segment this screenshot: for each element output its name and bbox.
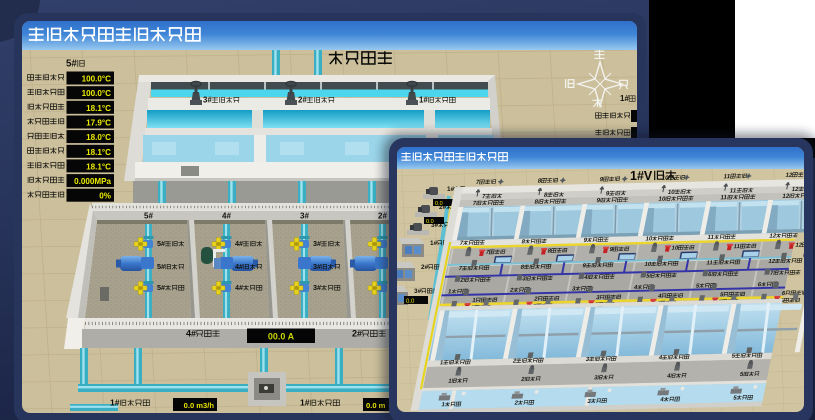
svg-text:18.1°C: 18.1°C [86,104,111,113]
svg-text:1#: 1# [419,95,428,104]
svg-text:5#: 5# [157,239,165,248]
svg-text:1#: 1# [447,186,455,193]
svg-text:0.0 m3/h: 0.0 m3/h [184,401,215,410]
svg-text:4#: 4# [235,262,243,271]
svg-text:4#: 4# [222,212,231,221]
svg-text:00.0 A: 00.0 A [268,332,295,342]
svg-text:17.9°C: 17.9°C [86,118,111,127]
svg-text:18.0°C: 18.0°C [86,133,111,142]
svg-text:18.1°C: 18.1°C [86,162,111,171]
svg-text:3#: 3# [203,95,212,104]
svg-text:5#: 5# [66,58,77,69]
svg-text:2#: 2# [352,328,362,338]
svg-text:1#V: 1#V [630,169,653,183]
svg-text:4#: 4# [186,328,196,338]
svg-text:2#: 2# [298,95,307,104]
svg-text:0.000MPa: 0.000MPa [74,177,111,186]
svg-text:0.0 m: 0.0 m [366,401,386,410]
svg-text:4#: 4# [235,239,243,248]
svg-text:2#: 2# [421,264,429,271]
svg-text:3#: 3# [313,239,321,248]
svg-text:3#: 3# [414,288,422,295]
svg-text:1#: 1# [110,398,120,408]
svg-text:1#: 1# [300,398,310,408]
svg-text:1#: 1# [620,94,629,103]
svg-text:0.0: 0.0 [406,299,415,305]
svg-text:0%: 0% [99,192,111,201]
svg-text:3#: 3# [313,262,321,271]
svg-text:4#: 4# [235,283,243,292]
svg-text:18.1°C: 18.1°C [86,148,111,157]
svg-text:100.0°C: 100.0°C [82,75,111,84]
svg-text:3#: 3# [313,283,321,292]
svg-text:5#: 5# [157,262,165,271]
svg-text:100.0°C: 100.0°C [82,89,111,98]
svg-text:5#: 5# [157,283,165,292]
svg-text:5#: 5# [144,212,153,221]
svg-text:3#: 3# [300,212,309,221]
svg-text:0.0: 0.0 [435,201,443,207]
svg-text:0.0: 0.0 [426,219,434,225]
svg-text:1#: 1# [430,240,438,247]
